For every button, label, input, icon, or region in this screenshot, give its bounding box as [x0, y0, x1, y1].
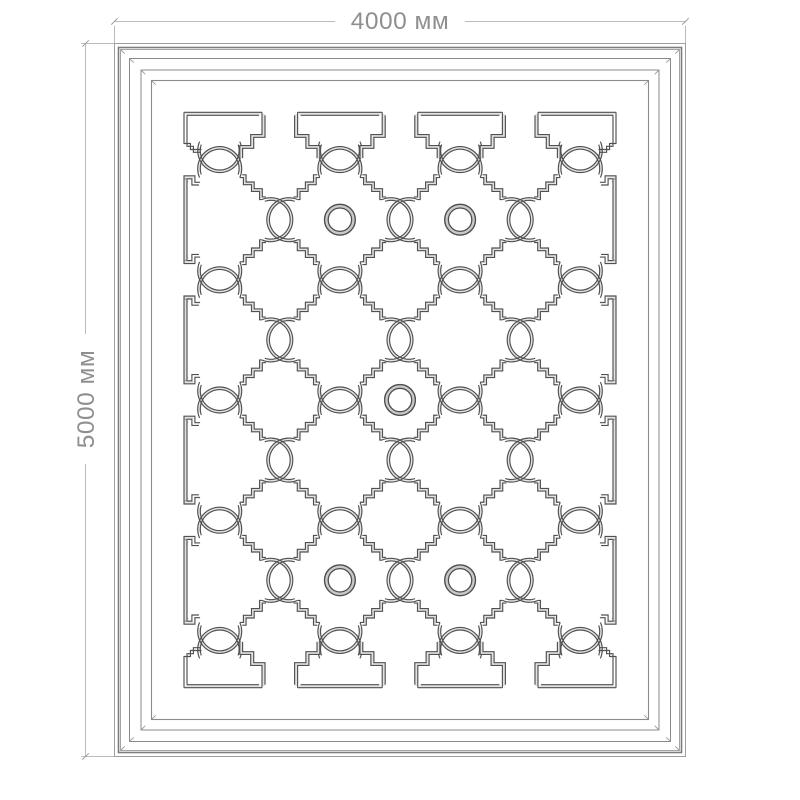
svg-text:4000 мм: 4000 мм [351, 8, 450, 35]
svg-text:5000 мм: 5000 мм [73, 350, 100, 449]
